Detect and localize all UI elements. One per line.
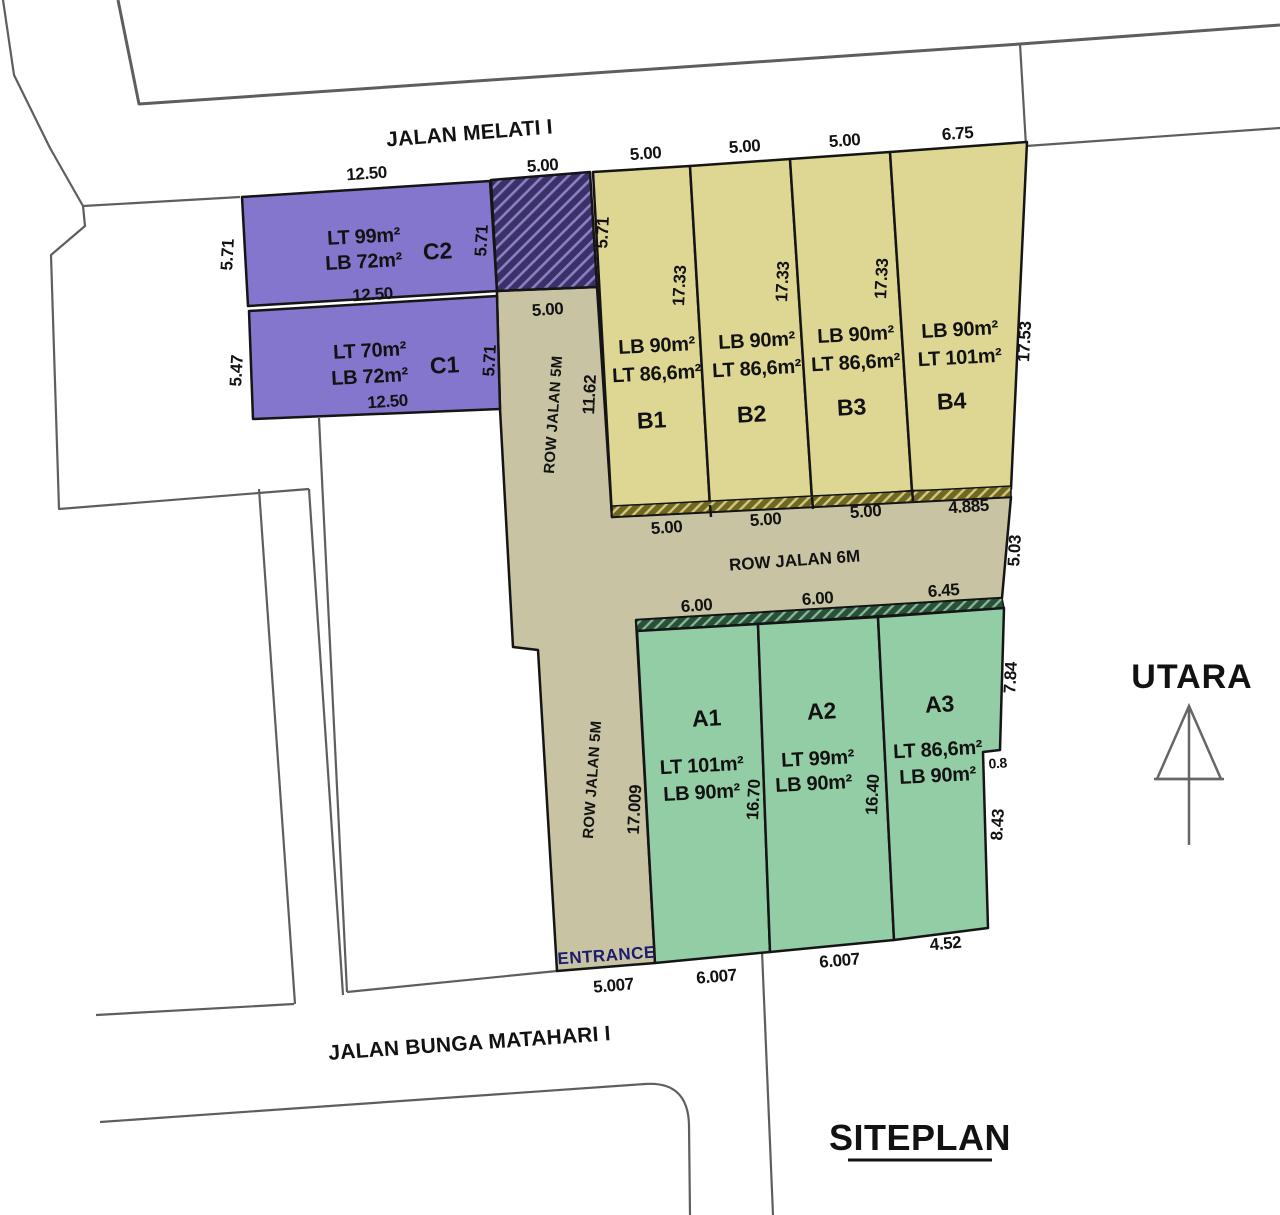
dim-row5-upper-length: 11.62 [579, 374, 600, 415]
plot-a1-lt: LT 101m² [659, 753, 745, 779]
dim-c2-right: 5.71 [471, 224, 492, 256]
dim-b3-top: 5.00 [828, 130, 861, 151]
plot-b2-id: B2 [736, 400, 767, 428]
plot-c1-lb: LB 72m² [331, 364, 409, 390]
plot-b1-lt: LT 86,6m² [612, 361, 703, 388]
dim-b4-top: 6.75 [941, 123, 974, 144]
dim-c2-bottom: 12.50 [352, 284, 394, 306]
plot-a3-lb: LB 90m² [899, 763, 977, 789]
plot-c2-id: C2 [422, 237, 453, 265]
plot-b4-lb: LB 90m² [921, 317, 999, 343]
dim-a3-right-upper: 7.84 [1000, 661, 1021, 694]
dim-b1-length: 17.33 [669, 265, 690, 306]
dim-c1-left: 5.47 [226, 354, 247, 386]
page-title: SITEPLAN [829, 1117, 1011, 1158]
gate-hatched-area [491, 172, 597, 291]
dim-row5-width: 5.00 [531, 299, 564, 320]
dim-a1-a2-length: 16.70 [743, 779, 764, 820]
plot-b4-id: B4 [936, 387, 967, 415]
dim-b4-right: 17.53 [1014, 321, 1035, 362]
plot-b2-lt: LT 86,6m² [712, 356, 803, 383]
southwest-parcel-line-1 [259, 489, 295, 1004]
dim-a3-right-lower: 8.43 [987, 808, 1008, 840]
plot-b1-id: B1 [636, 406, 667, 434]
dim-b4-bottom: 4.885 [948, 496, 990, 518]
plot-b2-lb: LB 90m² [718, 328, 796, 354]
plot-c1-id: C1 [429, 351, 460, 379]
siteplan-page: JALAN MELATI I JALAN BUNGA MATAHARI I RO… [0, 0, 1280, 1215]
north-arrow-icon [1154, 706, 1224, 845]
plot-c2-lb: LB 72m² [325, 249, 403, 275]
plot-a1-id: A1 [691, 704, 722, 732]
dim-b3-bottom: 5.00 [849, 501, 882, 522]
south-parcel-divider-line [762, 951, 773, 1215]
dim-b1-top: 5.00 [629, 143, 662, 164]
dim-a1-top: 6.00 [680, 595, 713, 616]
compass-label: UTARA [1131, 658, 1252, 696]
dim-a3-top: 6.45 [927, 580, 960, 601]
road-label-jalan-melati: JALAN MELATI I [385, 116, 553, 152]
north-road-secondary-line [1020, 44, 1280, 146]
plot-a2-id: A2 [806, 697, 837, 725]
plot-c2-lt: LT 99m² [327, 224, 402, 250]
dim-gate-top: 5.00 [526, 155, 559, 176]
north-road-edge-line [118, 0, 1280, 104]
plot-b3-lb: LB 90m² [817, 322, 895, 348]
dim-a3-step: 0.8 [988, 754, 1008, 771]
plot-b1-lb: LB 90m² [618, 333, 696, 359]
plot-c1-lt: LT 70m² [333, 338, 408, 364]
dim-a1-bottom: 6.007 [695, 965, 737, 987]
dim-a2-bottom: 6.007 [818, 949, 860, 971]
dim-a3-bottom: 4.52 [929, 933, 962, 955]
dim-entrance-width: 5.007 [592, 974, 634, 996]
plot-a1-lb: LB 90m² [663, 780, 741, 806]
siteplan-drawing: JALAN MELATI I JALAN BUNGA MATAHARI I RO… [0, 0, 1280, 1215]
dim-c2-left: 5.71 [217, 238, 238, 270]
plot-a2-lb: LB 90m² [775, 771, 853, 797]
dim-c2-top: 12.50 [346, 163, 388, 185]
plot-a2-lt: LT 99m² [781, 746, 856, 772]
plot-b3-lt: LT 86,6m² [811, 350, 902, 377]
dim-b2-length: 17.33 [772, 261, 793, 302]
dim-b1-left: 5.71 [592, 216, 613, 248]
plot-b4 [890, 142, 1027, 491]
dim-a2-top: 6.00 [801, 588, 834, 609]
dim-a2-a3-length: 16.40 [862, 774, 883, 815]
dim-b3-length: 17.33 [871, 258, 892, 299]
dim-c1-right: 5.71 [479, 344, 500, 376]
plot-b4-lt: LT 101m² [917, 345, 1003, 371]
dim-c1-bottom: 12.50 [367, 391, 409, 413]
plot-a3-lt: LT 86,6m² [893, 737, 984, 764]
road-label-jalan-bunga-matahari: JALAN BUNGA MATAHARI I [328, 1022, 612, 1065]
dim-b1-bottom: 5.00 [650, 517, 683, 538]
south-site-boundary-line [347, 971, 557, 992]
road-edge-left-of-c2-line [83, 197, 240, 206]
plot-b3-id: B3 [836, 393, 867, 421]
south-road-edge-line [100, 1084, 690, 1215]
dim-b2-top: 5.00 [728, 136, 761, 157]
dim-a1-left: 17.009 [624, 784, 646, 835]
southwest-parcel-bottom-line [96, 1004, 294, 1015]
dim-row6-right: 5.03 [1004, 534, 1025, 566]
dim-b2-bottom: 5.00 [749, 509, 782, 530]
plot-a3-id: A3 [924, 690, 955, 718]
